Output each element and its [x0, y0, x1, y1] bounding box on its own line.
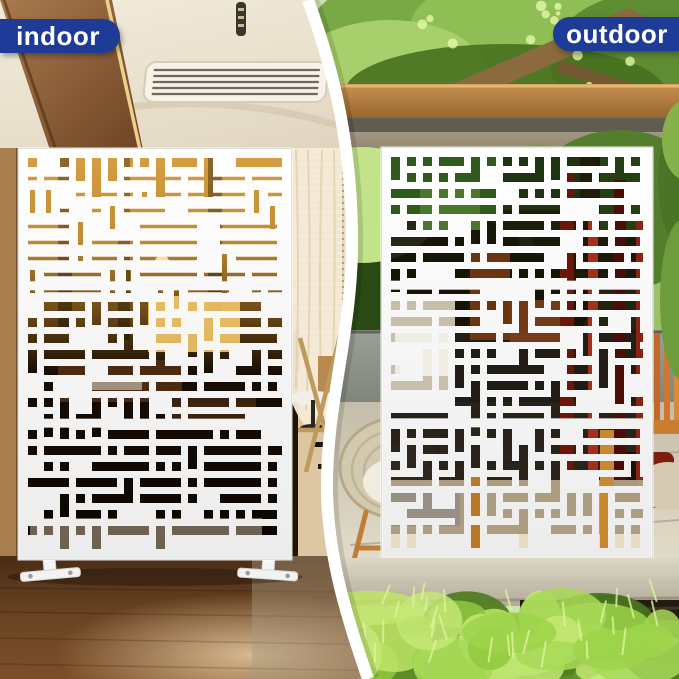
privacy-screen-outdoor — [369, 147, 671, 583]
privacy-screen-indoor — [7, 148, 303, 586]
scene-illustration — [0, 0, 679, 679]
outdoor-badge: outdoor — [553, 17, 679, 51]
ac-vent — [143, 62, 328, 102]
product-image: indoor outdoor — [0, 0, 679, 679]
pergola-beam — [330, 84, 679, 118]
indoor-badge: indoor — [0, 19, 120, 53]
